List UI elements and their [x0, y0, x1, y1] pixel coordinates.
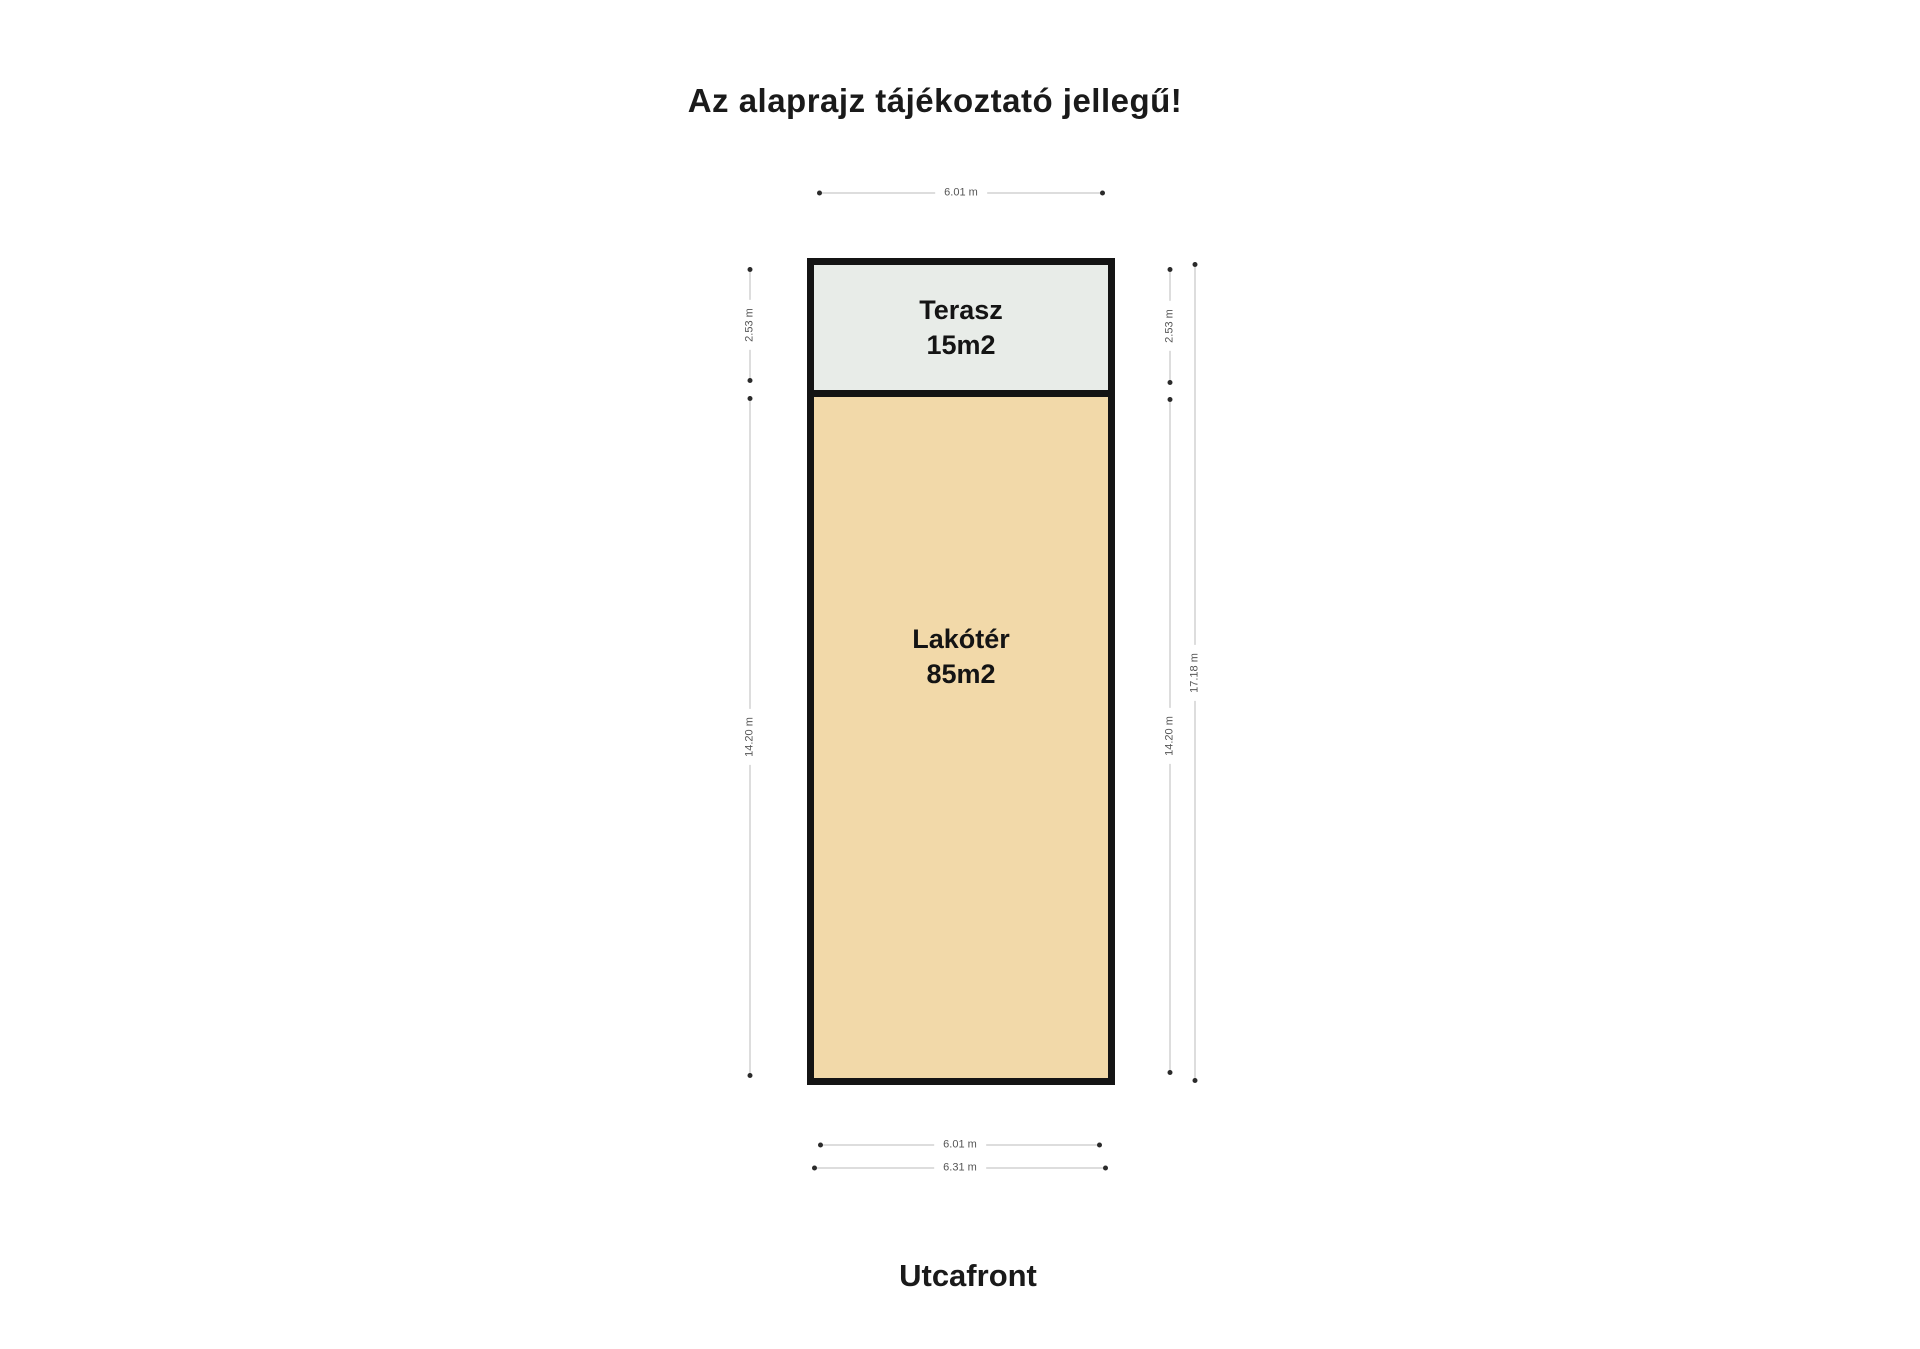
dimension-endpoint-dot: [818, 1143, 823, 1148]
dimension-bottom-width: 6.01 m: [818, 1140, 1102, 1150]
dimension-endpoint-dot: [748, 378, 753, 383]
street-front-label: Utcafront: [899, 1258, 1037, 1294]
dimension-endpoint-dot: [1168, 380, 1173, 385]
dimension-label: 6.01 m: [935, 187, 987, 200]
dimension-endpoint-dot: [1103, 1166, 1108, 1171]
dimension-label: 17.18 m: [1189, 645, 1202, 701]
dimension-endpoint-dot: [1168, 397, 1173, 402]
dimension-bottom-total-width: 6.31 m: [812, 1163, 1108, 1173]
disclaimer-title: Az alaprajz tájékoztató jellegű!: [688, 82, 1183, 120]
dimension-left-terasz-height: 2.53 m: [745, 267, 755, 383]
room-name: Terasz: [814, 293, 1108, 328]
room-area: 85m2: [814, 657, 1108, 692]
dimension-endpoint-dot: [748, 267, 753, 272]
dimension-endpoint-dot: [1193, 1078, 1198, 1083]
dimension-endpoint-dot: [748, 396, 753, 401]
room-area: 15m2: [814, 328, 1108, 363]
dimension-endpoint-dot: [1100, 191, 1105, 196]
dimension-endpoint-dot: [748, 1073, 753, 1078]
dimension-endpoint-dot: [1097, 1143, 1102, 1148]
dimension-label: 6.01 m: [934, 1139, 986, 1152]
dimension-label: 2.53 m: [744, 300, 757, 350]
room-terasz-label: Terasz 15m2: [814, 293, 1108, 363]
dimension-label: 14.20 m: [1164, 708, 1177, 764]
dimension-right-lakoter-height: 14.20 m: [1165, 397, 1175, 1075]
dimension-top-width: 6.01 m: [817, 188, 1105, 198]
dimension-endpoint-dot: [1168, 1070, 1173, 1075]
room-lakoter: Lakótér 85m2: [814, 397, 1108, 1078]
floorplan-canvas: Az alaprajz tájékoztató jellegű! 6.01 m …: [0, 0, 1920, 1349]
floorplan-outline: Terasz 15m2 Lakótér 85m2: [807, 258, 1115, 1085]
dimension-endpoint-dot: [817, 191, 822, 196]
dimension-label: 2.53 m: [1164, 301, 1177, 351]
room-lakoter-label: Lakótér 85m2: [814, 622, 1108, 692]
room-name: Lakótér: [814, 622, 1108, 657]
dimension-endpoint-dot: [1193, 262, 1198, 267]
dimension-right-total-height: 17.18 m: [1190, 262, 1200, 1083]
dimension-endpoint-dot: [1168, 267, 1173, 272]
dimension-right-terasz-height: 2.53 m: [1165, 267, 1175, 385]
dimension-label: 6.31 m: [934, 1162, 986, 1175]
dimension-label: 14.20 m: [744, 709, 757, 765]
dimension-endpoint-dot: [812, 1166, 817, 1171]
room-terasz: Terasz 15m2: [814, 265, 1108, 397]
dimension-left-lakoter-height: 14.20 m: [745, 396, 755, 1078]
